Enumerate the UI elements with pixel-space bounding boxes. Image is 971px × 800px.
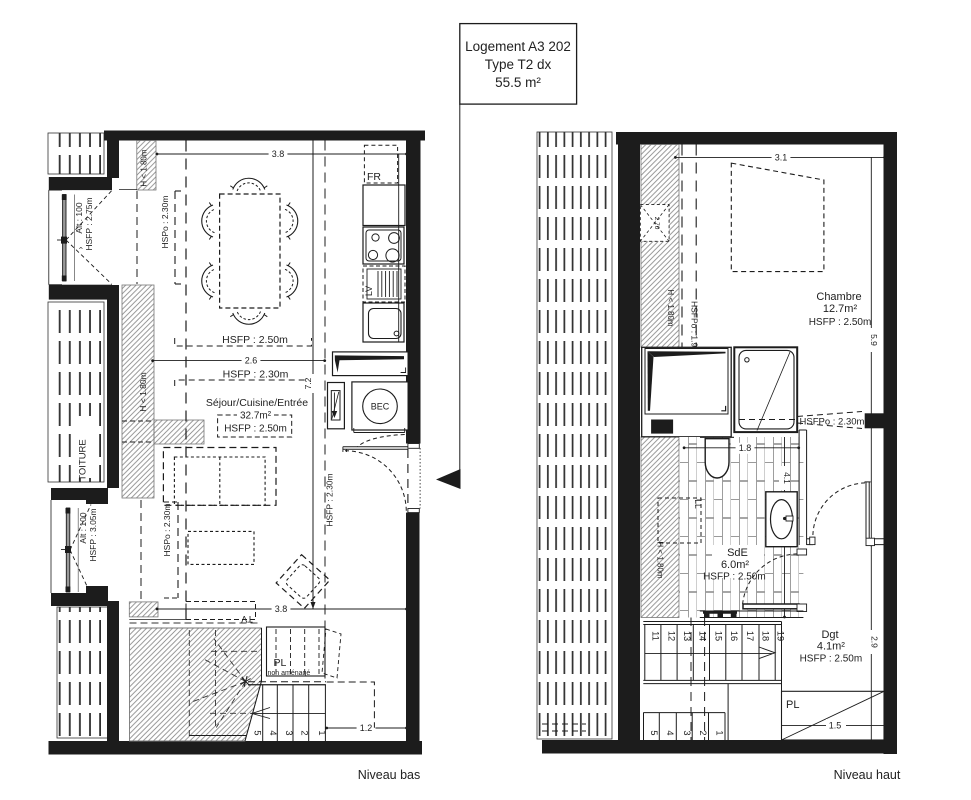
svg-text:HSFP : 2.30m: HSFP : 2.30m <box>325 473 335 526</box>
svg-text:HSFP : 2.75m: HSFP : 2.75m <box>84 197 94 250</box>
svg-text:5: 5 <box>649 730 659 735</box>
svg-text:3.8: 3.8 <box>272 149 285 159</box>
svg-text:2: 2 <box>300 730 310 735</box>
svg-text:HSFP : 2.50m: HSFP : 2.50m <box>222 334 288 346</box>
svg-text:SdE: SdE <box>727 547 748 559</box>
svg-text:11: 11 <box>651 631 661 641</box>
svg-text:4.1m²: 4.1m² <box>817 641 845 653</box>
svg-text:Logement A3 202: Logement A3 202 <box>465 39 571 54</box>
svg-text:TV: TV <box>241 614 253 624</box>
svg-text:non aménagé: non aménagé <box>268 670 311 677</box>
svg-text:13: 13 <box>682 631 692 641</box>
svg-text:H < 1.80m: H < 1.80m <box>666 289 675 326</box>
svg-text:7.2: 7.2 <box>303 377 313 389</box>
svg-text:3.8: 3.8 <box>275 604 288 614</box>
svg-text:12.7m²: 12.7m² <box>823 303 858 315</box>
svg-text:5: 5 <box>252 730 262 735</box>
svg-text:3: 3 <box>284 730 294 735</box>
svg-text:1.5: 1.5 <box>829 721 842 731</box>
svg-text:BEC: BEC <box>371 402 390 412</box>
svg-text:HSFP : 2.50m: HSFP : 2.50m <box>800 654 863 665</box>
svg-text:1.2: 1.2 <box>360 723 373 733</box>
svg-text:Dgt: Dgt <box>821 629 838 641</box>
svg-text:HSFP : 2.50m: HSFP : 2.50m <box>703 572 766 583</box>
svg-text:Séjour/Cuisine/Entrée: Séjour/Cuisine/Entrée <box>206 397 308 409</box>
svg-text:HSFP : 2.50m: HSFP : 2.50m <box>809 317 872 328</box>
svg-text:6.0m²: 6.0m² <box>721 559 749 571</box>
svg-text:14: 14 <box>698 631 708 641</box>
svg-text:FR: FR <box>367 171 381 183</box>
svg-text:1: 1 <box>317 730 327 735</box>
svg-text:2.6: 2.6 <box>245 356 258 366</box>
svg-text:12: 12 <box>666 631 676 641</box>
svg-text:4: 4 <box>268 730 278 735</box>
svg-text:HSFPo : 2.30m: HSFPo : 2.30m <box>800 417 865 428</box>
svg-text:H < 1.80m: H < 1.80m <box>656 541 665 578</box>
svg-text:16: 16 <box>729 631 739 641</box>
svg-text:4: 4 <box>665 730 675 735</box>
svg-text:19: 19 <box>776 631 786 641</box>
svg-text:HSFP : 3.05m: HSFP : 3.05m <box>88 508 98 561</box>
svg-text:4.1: 4.1 <box>782 472 792 484</box>
svg-text:32.7m²: 32.7m² <box>240 411 272 422</box>
svg-text:LV: LV <box>364 286 374 296</box>
svg-text:15: 15 <box>713 631 723 641</box>
svg-text:PL: PL <box>274 657 287 669</box>
svg-text:3: 3 <box>682 730 692 735</box>
svg-text:HSPo : 2.30m: HSPo : 2.30m <box>162 504 172 557</box>
svg-text:2.70: 2.70 <box>653 217 660 230</box>
svg-text:Niveau haut: Niveau haut <box>834 768 901 782</box>
svg-text:1: 1 <box>715 730 725 735</box>
svg-text:PL: PL <box>786 699 799 711</box>
svg-text:18: 18 <box>761 631 771 641</box>
svg-text:HSPo : 2.30m: HSPo : 2.30m <box>160 196 170 249</box>
svg-text:Type T2 dx: Type T2 dx <box>485 57 552 72</box>
svg-text:HSFP : 2.50m: HSFP : 2.50m <box>224 424 287 435</box>
svg-text:›: › <box>76 246 85 249</box>
svg-text:Alt : 100: Alt : 100 <box>78 512 88 543</box>
svg-text:17: 17 <box>745 631 755 641</box>
svg-text:2: 2 <box>698 730 708 735</box>
svg-text:Alt : 100: Alt : 100 <box>74 202 84 233</box>
svg-text:H < 1.80m: H < 1.80m <box>140 149 149 186</box>
svg-text:5.9: 5.9 <box>869 334 879 346</box>
svg-text:LL: LL <box>693 499 703 509</box>
svg-text:Chambre: Chambre <box>816 291 861 303</box>
svg-text:3.1: 3.1 <box>775 152 788 162</box>
svg-text:TOITURE: TOITURE <box>78 439 89 481</box>
svg-text:2.9: 2.9 <box>870 636 880 648</box>
svg-text:1.8: 1.8 <box>739 443 752 453</box>
svg-text:Niveau bas: Niveau bas <box>358 768 421 782</box>
svg-text:HSFP : 2.30m: HSFP : 2.30m <box>223 369 289 381</box>
svg-text:55.5 m²: 55.5 m² <box>495 75 541 90</box>
svg-text:H < 1.80m: H < 1.80m <box>138 372 148 411</box>
